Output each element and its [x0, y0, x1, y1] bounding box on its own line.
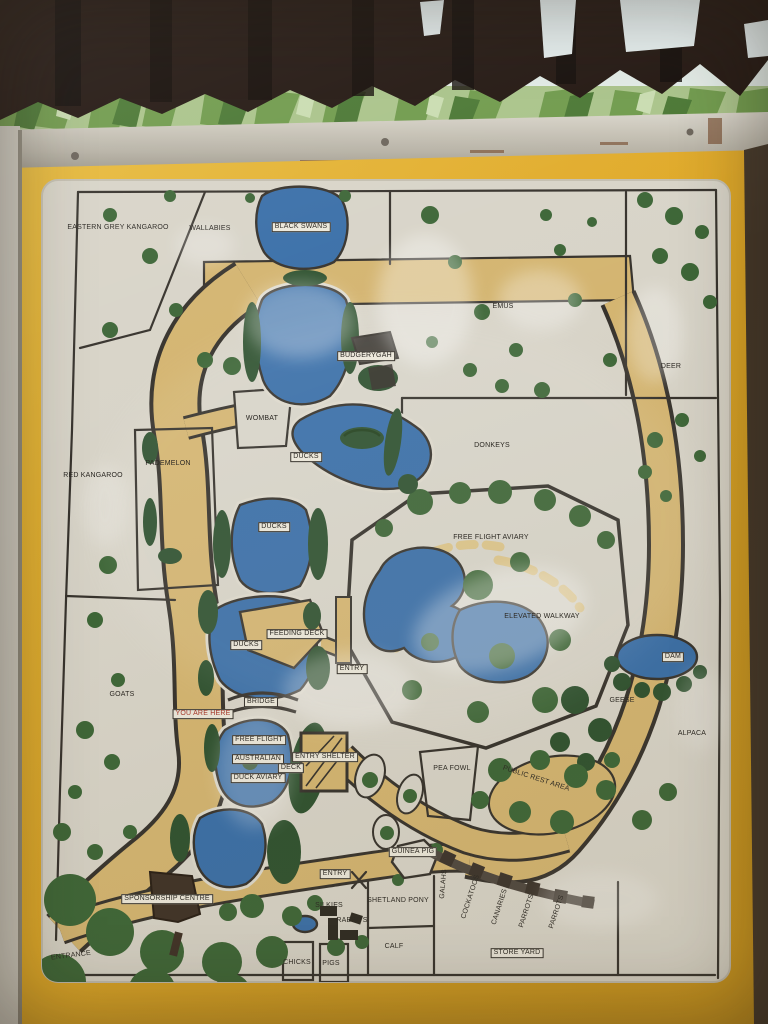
entry-shelter-building: [301, 733, 347, 791]
guinea-pig-pen: [392, 840, 438, 878]
photo-of-park-map-sign: .ln{stroke:var(--line);fill:none;stroke-…: [0, 0, 768, 1024]
black-swans-pond: [256, 187, 347, 269]
map-sign-artwork: .ln{stroke:var(--line);fill:none;stroke-…: [0, 0, 768, 1024]
